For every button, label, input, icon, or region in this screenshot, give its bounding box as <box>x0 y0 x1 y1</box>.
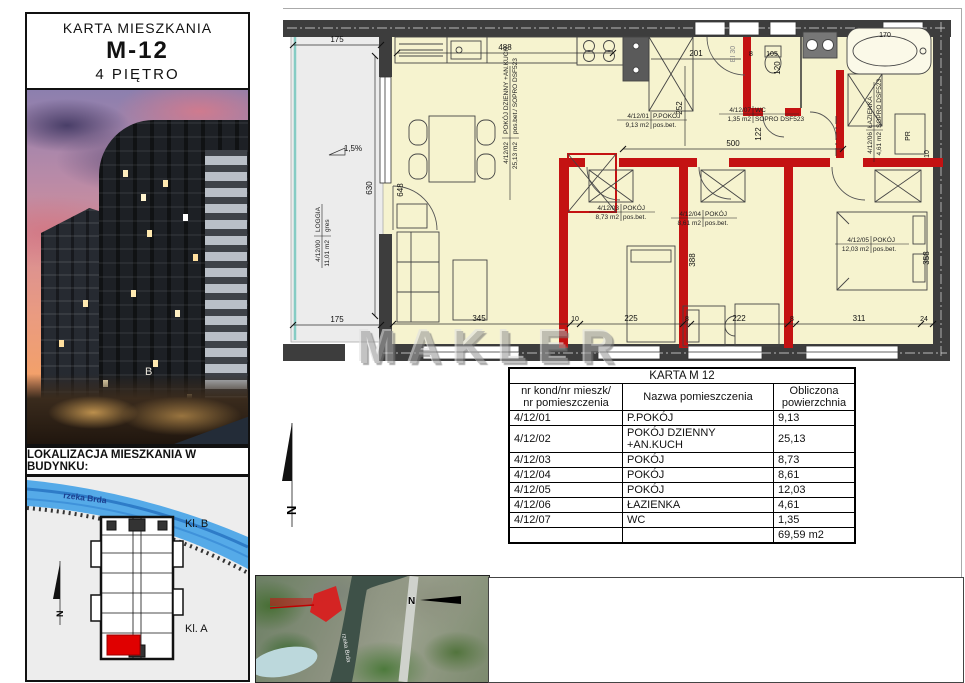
aerial-north-label: N <box>408 596 415 607</box>
svg-text:SOPRO DSF523: SOPRO DSF523 <box>755 116 805 123</box>
svg-text:24: 24 <box>920 316 928 323</box>
location-heading: LOKALIZACJA MIESZKANIA W BUDYNKU: <box>25 446 250 476</box>
card-title: KARTA MIESZKANIA <box>63 20 212 36</box>
svg-text:8: 8 <box>749 51 753 58</box>
svg-text:8,61 m2: 8,61 m2 <box>678 220 702 227</box>
svg-text:122: 122 <box>754 127 763 141</box>
lit-windows <box>123 170 128 177</box>
svg-text:ŁAZIENKA: ŁAZIENKA <box>867 96 874 128</box>
floor-plan: 175 175 630 1,5% 488 201 8 105 500 252 1… <box>283 8 963 366</box>
svg-text:8,73 m2: 8,73 m2 <box>596 214 620 221</box>
svg-text:175: 175 <box>330 35 344 44</box>
table-row: 4/12/06ŁAZIENKA4,61 <box>509 498 855 513</box>
svg-text:pos.bet.: pos.bet. <box>873 246 896 253</box>
building-location-diagram: rzeka Brda Kl. B Kl. A <box>25 476 250 682</box>
svg-text:4/12/01: 4/12/01 <box>627 113 649 120</box>
aerial-road <box>398 576 418 682</box>
svg-text:4/12/07: 4/12/07 <box>729 107 751 114</box>
fridge-icon <box>623 37 649 81</box>
svg-text:pos.bet.: pos.bet. <box>705 220 728 227</box>
svg-text:4/12/00: 4/12/00 <box>315 240 322 262</box>
svg-text:105: 105 <box>766 51 778 58</box>
svg-text:222: 222 <box>732 314 746 323</box>
location-diagram-svg: rzeka Brda Kl. B Kl. A <box>27 477 248 680</box>
table-row: 4/12/01P.POKÓJ9,13 <box>509 411 855 426</box>
svg-text:PR: PR <box>905 131 912 141</box>
building-photo: B <box>25 90 250 446</box>
col-header-room-name: Nazwa pomieszczenia <box>623 384 774 411</box>
svg-text:201: 201 <box>689 49 703 58</box>
svg-text:630: 630 <box>365 181 374 195</box>
svg-text:11,01 m2: 11,01 m2 <box>324 240 331 267</box>
svg-text:311: 311 <box>853 314 866 323</box>
svg-text:gres: gres <box>324 219 331 232</box>
svg-text:170: 170 <box>879 32 891 39</box>
svg-text:175: 175 <box>330 315 344 324</box>
svg-text:pos.bet.: pos.bet. <box>653 122 676 129</box>
plan-north-label: N <box>284 506 299 515</box>
svg-text:4/12/06: 4/12/06 <box>867 132 874 154</box>
svg-text:4/12/02: 4/12/02 <box>503 142 510 164</box>
svg-text:WC: WC <box>755 107 766 114</box>
svg-text:1,35 m2: 1,35 m2 <box>728 116 752 123</box>
unit-number: M-12 <box>106 37 169 65</box>
apartment-floor <box>383 36 940 348</box>
svg-text:POKÓJ: POKÓJ <box>873 235 895 244</box>
table-row: 4/12/05POKÓJ12,03 <box>509 483 855 498</box>
svg-text:12,03 m2: 12,03 m2 <box>842 246 869 253</box>
table-row: 4/12/04POKÓJ8,61 <box>509 468 855 483</box>
building-letter: B <box>145 366 152 378</box>
svg-text:358: 358 <box>922 251 931 265</box>
svg-text:POKÓJ: POKÓJ <box>705 209 727 218</box>
plan-north-arrow: N <box>278 415 310 543</box>
svg-text:LOGGIA: LOGGIA <box>315 206 322 232</box>
table-row: 4/12/02POKÓJ DZIENNY +AN.KUCH25,13 <box>509 426 855 453</box>
svg-text:8: 8 <box>790 316 794 323</box>
svg-text:4/12/05: 4/12/05 <box>847 237 869 244</box>
svg-text:4/12/03: 4/12/03 <box>597 205 619 212</box>
highlighted-unit <box>107 635 140 655</box>
svg-text:pos.bet.: pos.bet. <box>623 214 646 221</box>
svg-text:POKÓJ DZIENNY +AN.KUCH: POKÓJ DZIENNY +AN.KUCH <box>501 47 510 134</box>
table-row: 4/12/07WC1,35 <box>509 513 855 528</box>
apartment-card-header: KARTA MIESZKANIA M-12 4 PIĘTRO <box>25 12 250 90</box>
aerial-map-photo: N rzeka Brda <box>255 575 490 683</box>
development-label-red <box>270 598 312 606</box>
svg-text:SOPRO DSF523: SOPRO DSF523 <box>876 78 883 128</box>
svg-text:P.POKÓJ: P.POKÓJ <box>653 111 680 120</box>
aerial-overlay: N rzeka Brda <box>256 576 489 682</box>
makler-watermark: MAKLER <box>358 320 627 374</box>
svg-text:648: 648 <box>396 183 405 197</box>
table-row-total: 69,59 m2 <box>509 528 855 544</box>
svg-text:10: 10 <box>924 150 931 158</box>
staircase-b-label: Kl. B <box>185 518 208 530</box>
location-marker <box>310 586 342 622</box>
notes-panel <box>488 577 964 683</box>
svg-text:EI 30: EI 30 <box>730 46 737 62</box>
room-area-table: KARTA M 12 nr kond/nr mieszk/ nr pomiesz… <box>508 367 856 544</box>
svg-text:25,13 m2: 25,13 m2 <box>512 142 519 169</box>
table-row: 4/12/03POKÓJ8,73 <box>509 453 855 468</box>
apartment-card-page: KARTA MIESZKANIA M-12 4 PIĘTRO B LOKALIZ… <box>0 0 965 683</box>
svg-text:9,13 m2: 9,13 m2 <box>626 122 650 129</box>
svg-text:388: 388 <box>688 253 697 267</box>
svg-text:120: 120 <box>773 61 782 75</box>
svg-text:pos.bet./ SOPRO DSF523: pos.bet./ SOPRO DSF523 <box>512 58 519 134</box>
col-header-area: Obliczona powierzchnia <box>774 384 856 411</box>
staircase-a-label: Kl. A <box>185 623 208 635</box>
diagram-north-label: N <box>55 611 65 618</box>
diagram-north-arrow: N <box>53 561 65 625</box>
aerial-north-arrow <box>420 596 461 604</box>
svg-text:500: 500 <box>726 139 740 148</box>
svg-text:4/12/04: 4/12/04 <box>679 211 701 218</box>
svg-text:4,61 m2: 4,61 m2 <box>876 132 883 156</box>
aerial-opera-building <box>256 641 320 682</box>
svg-text:POKÓJ: POKÓJ <box>623 203 645 212</box>
svg-text:8: 8 <box>685 316 689 323</box>
floor-label: 4 PIĘTRO <box>95 66 179 83</box>
svg-text:1,5%: 1,5% <box>344 144 362 153</box>
col-header-room-id: nr kond/nr mieszk/ nr pomieszczenia <box>509 384 623 411</box>
